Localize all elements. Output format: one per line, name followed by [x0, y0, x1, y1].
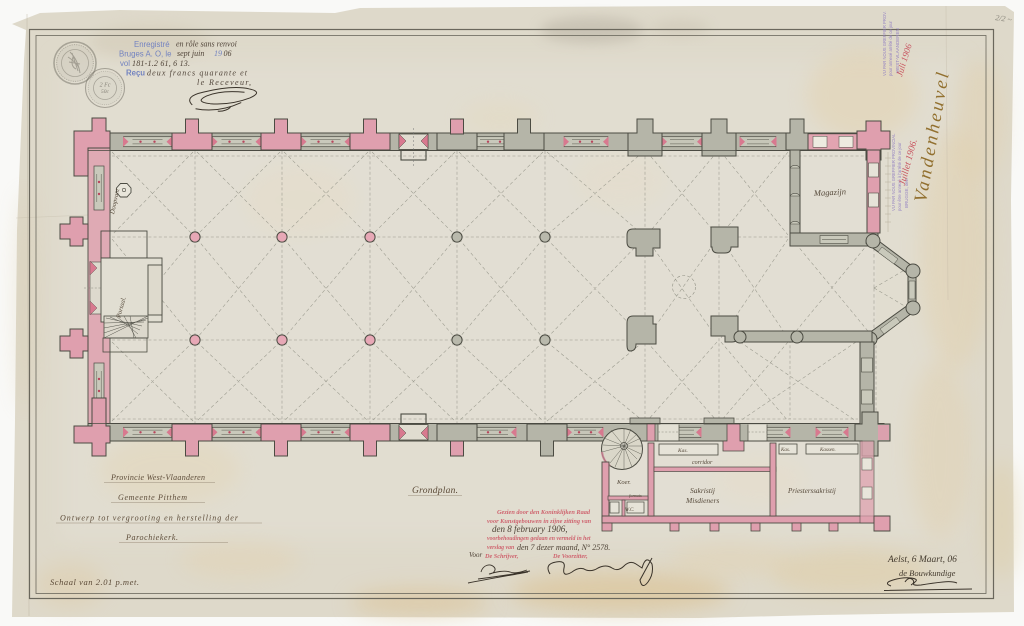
svg-text:den 8 february 1906,: den 8 february 1906,: [492, 524, 568, 534]
svg-text:Grondplan.: Grondplan.: [412, 486, 458, 496]
svg-text:De Schrijver,: De Schrijver,: [484, 553, 519, 560]
svg-text:deux francs quarante et: deux francs quarante et: [147, 69, 248, 78]
svg-text:W.C.: W.C.: [625, 508, 635, 513]
svg-text:den 7 dezer maand, N° 2578.: den 7 dezer maand, N° 2578.: [517, 543, 610, 552]
svg-text:Priesterssakristij: Priesterssakristij: [787, 487, 836, 495]
svg-text:De Voorzitter,: De Voorzitter,: [552, 553, 588, 560]
svg-text:voorbehoudingen gedaan en verm: voorbehoudingen gedaan en vermeld in het: [487, 536, 591, 542]
svg-text:181-1.2 61, 6 13.: 181-1.2 61, 6 13.: [132, 59, 190, 68]
svg-text:Enregistré: Enregistré: [134, 40, 170, 49]
svg-text:vol: vol: [120, 59, 130, 68]
svg-text:Gezien door den Koninklijken R: Gezien door den Koninklijken Raad: [497, 509, 591, 516]
svg-text:06: 06: [224, 49, 232, 58]
svg-text:verslag van: verslag van: [487, 545, 514, 551]
svg-text:Kas.: Kas.: [677, 448, 688, 454]
svg-text:pour annexé arrêté de ce jour: pour annexé arrêté de ce jour: [888, 20, 893, 76]
svg-text:Kassen.: Kassen.: [819, 448, 836, 453]
svg-text:Provincie West-Vlaanderen: Provincie West-Vlaanderen: [110, 473, 205, 482]
svg-text:Kas.: Kas.: [780, 448, 790, 453]
svg-text:Aelst, 6 Maart, 06: Aelst, 6 Maart, 06: [887, 555, 957, 565]
svg-text:fornuis: fornuis: [629, 493, 642, 498]
svg-text:Sakristij: Sakristij: [690, 486, 715, 495]
svg-text:de Bouwkundige: de Bouwkundige: [899, 568, 956, 578]
svg-text:Schaal van 2.01 p.met.: Schaal van 2.01 p.met.: [50, 577, 139, 587]
svg-text:corridor: corridor: [692, 460, 713, 466]
svg-text:Misdieners: Misdieners: [685, 496, 719, 505]
svg-text:Voor: Voor: [469, 551, 483, 559]
svg-text:Bruges A. O, le: Bruges A. O, le: [119, 50, 171, 59]
svg-text:Gemeente Pitthem: Gemeente Pitthem: [118, 493, 187, 502]
svg-text:VU PAR NOUS GREFFIER PROV.: VU PAR NOUS GREFFIER PROV.: [882, 11, 887, 76]
svg-text:Koer.: Koer.: [616, 479, 631, 486]
svg-text:en rôle sans renvoi: en rôle sans renvoi: [176, 40, 237, 49]
svg-text:Reçu: Reçu: [126, 69, 145, 78]
svg-text:Ontwerp tot vergrooting en her: Ontwerp tot vergrooting en herstelling d…: [60, 514, 239, 523]
svg-text:VU PAR NOUS GREFFIER PROVINCIA: VU PAR NOUS GREFFIER PROVINCIAL: [891, 133, 896, 211]
svg-text:Magazijn: Magazijn: [813, 186, 847, 198]
svg-text:19: 19: [214, 49, 222, 58]
svg-text:sept juin: sept juin: [177, 49, 204, 58]
svg-text:Parochiekerk.: Parochiekerk.: [125, 533, 178, 542]
